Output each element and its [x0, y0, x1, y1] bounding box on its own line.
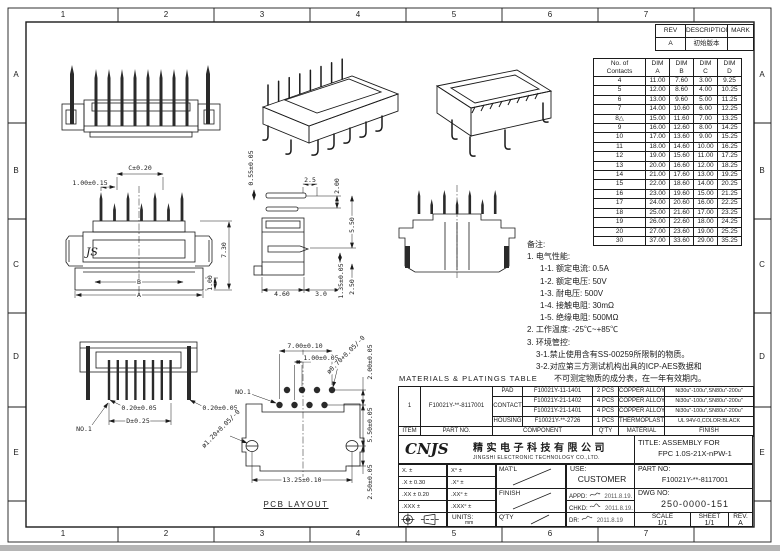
grid-ref-label: 4: [356, 530, 360, 538]
dimension-label: 2.50±0.05: [367, 463, 374, 500]
table-cell: 5: [594, 86, 646, 95]
dimension-label: D±0.25: [125, 418, 150, 425]
table-row: No. ofContactsDIMADIMBDIMCDIMD: [594, 59, 742, 77]
company-cell: CNJS 精实电子科技有限公司 JINGSHI ELECTRONIC TECHN…: [398, 435, 635, 464]
table-row: 613.009.605.0011.25: [594, 95, 742, 104]
table-cell: 13: [594, 161, 646, 170]
table-cell: F10021Y-21-1401: [523, 407, 593, 417]
dr-signature: [581, 515, 593, 522]
note-line: 1-3. 耐电压: 500V: [527, 288, 706, 300]
table-cell: 6.00: [694, 105, 718, 114]
table-cell: 14: [594, 171, 646, 180]
dimension-label: 2.50: [349, 278, 356, 296]
table-cell: 14.00: [694, 180, 718, 189]
table-cell: 4 PCS: [593, 407, 619, 417]
column-header: DIMA: [646, 59, 670, 77]
note-line: 3-2.对应第三方测试机构出具的ICP-AES数据和: [527, 361, 706, 373]
table-cell: 1 PCS: [593, 417, 619, 427]
grid-ref-label: 3: [260, 530, 264, 538]
table-cell: 13.00: [694, 171, 718, 180]
rev-label: REV.: [729, 513, 752, 520]
table-cell: 4.00: [694, 86, 718, 95]
table-cell: 15.00: [694, 189, 718, 198]
grid-ref-label: E: [13, 449, 18, 457]
table-cell: 8△: [594, 114, 646, 123]
table-row: 714.0010.606.0012.25: [594, 105, 742, 114]
table-cell: 8.60: [670, 86, 694, 95]
table-cell: 11.00: [646, 77, 670, 86]
table-cell: F10021Y-**-2726: [523, 417, 593, 427]
table-cell: 19: [594, 218, 646, 227]
table-cell: 35.25: [718, 236, 742, 245]
view-bottom: [80, 342, 197, 400]
table-cell: 9.00: [694, 133, 718, 142]
table-cell: 18: [594, 208, 646, 217]
table-cell: 16.00: [694, 199, 718, 208]
table-cell: 1: [399, 387, 421, 427]
table-cell: 15.25: [718, 133, 742, 142]
units-cell: UNITS: mm: [447, 512, 496, 527]
note-line: 3. 环境管控:: [527, 337, 706, 349]
dimension-label: B: [136, 279, 142, 286]
table-cell: 8.00: [694, 124, 718, 133]
grid-ref-label: 6: [548, 530, 552, 538]
table-cell: 25.00: [646, 208, 670, 217]
title-line1: ASSEMBLY FOR: [662, 438, 720, 447]
table-cell: 11: [594, 142, 646, 151]
grid-ref-label: B: [759, 167, 764, 175]
dimension-label: C±0.20: [127, 165, 152, 172]
dimension-label: JS: [85, 247, 99, 258]
dimension-label: 0.20±0.05: [120, 405, 157, 412]
grid-ref-label: 1: [61, 11, 65, 19]
table-cell: 15: [594, 180, 646, 189]
dimension-label: 5.50: [349, 216, 356, 234]
table-row: 1118.0014.6010.0016.25: [594, 142, 742, 151]
table-cell: COPPER ALLOY: [619, 387, 665, 397]
column-header: No. ofContacts: [594, 59, 646, 77]
grid-ref-label: 4: [356, 11, 360, 19]
table-row: 1219.0015.6011.0017.25: [594, 152, 742, 161]
table-cell: 18.00: [646, 142, 670, 151]
table-cell: 14.00: [646, 105, 670, 114]
table-cell: 17.60: [670, 171, 694, 180]
grid-ref-label: 3: [260, 11, 264, 19]
view-iso-left: [263, 59, 398, 155]
table-cell: 19.00: [694, 227, 718, 236]
dimension-label: 2.00±0.05: [367, 343, 374, 380]
table-cell: 13.60: [670, 133, 694, 142]
table-cell: COPPER ALLOY: [619, 397, 665, 407]
dimension-label: NO.1: [75, 426, 93, 433]
table-cell: 6: [594, 95, 646, 104]
table-cell: 24.00: [646, 199, 670, 208]
table-row: 8△15.0011.607.0013.25: [594, 114, 742, 123]
table-cell: 4: [594, 77, 646, 86]
table-cell: 23.25: [718, 208, 742, 217]
cnjs-logo: CNJS: [405, 440, 449, 458]
grid-ref-label: 6: [548, 11, 552, 19]
use-value: CUSTOMER: [570, 474, 634, 484]
matl-cell: MAT'L: [496, 464, 566, 489]
table-cell: 5.00: [694, 95, 718, 104]
title-label: TITLE:: [638, 438, 661, 447]
table-cell: 22.00: [646, 180, 670, 189]
grid-ref-label: 2: [164, 11, 168, 19]
table-cell: 7.60: [670, 77, 694, 86]
table-cell: F10021Y-**-8117001: [421, 387, 493, 427]
dwg-no-label: DWG NO:: [638, 490, 670, 497]
dimension-label: 7.30: [221, 241, 228, 259]
table-cell: 18.00: [694, 218, 718, 227]
use-cell: USE: CUSTOMER: [566, 464, 635, 489]
qty-cell: Q'TY: [496, 512, 566, 527]
view-top: [62, 65, 220, 137]
dimension-label: 0.55±0.05: [248, 149, 255, 186]
table-row: 1825.0021.6017.0023.25: [594, 208, 742, 217]
grid-ref-label: E: [759, 449, 764, 457]
note-line: 3-1.禁止使用含有SS-00259所限制的物质。: [527, 349, 706, 361]
dimension-label: 13.25±0.10: [281, 477, 322, 484]
notes-section: 备注:1. 电气性能:1-1. 额定电流: 0.5A1-2. 额定电压: 50V…: [527, 239, 706, 385]
column-header: DIMC: [694, 59, 718, 77]
table-row: 916.0012.608.0014.25: [594, 124, 742, 133]
dr-label: DR:: [569, 518, 579, 524]
note-line: 1-1. 额定电流: 0.5A: [527, 263, 706, 275]
table-cell: 3.00: [694, 77, 718, 86]
table-cell: 14.60: [670, 142, 694, 151]
table-cell: 19.00: [646, 152, 670, 161]
table-cell: 18.25: [718, 161, 742, 170]
table-row: 1522.0018.6014.0020.25: [594, 180, 742, 189]
table-cell: 15.00: [646, 114, 670, 123]
table-cell: 20.60: [670, 199, 694, 208]
scale-cell: SCALE 1/1: [634, 512, 691, 527]
table-cell: 26.00: [646, 218, 670, 227]
table-row: 1F10021Y-**-8117001PADF10021Y-11-14012 P…: [399, 387, 754, 397]
table-cell: 21.25: [718, 189, 742, 198]
table-cell: 14.25: [718, 124, 742, 133]
table-cell: 10.60: [670, 105, 694, 114]
company-name-cn: 精实电子科技有限公司: [473, 439, 608, 454]
table-cell: 19.60: [670, 189, 694, 198]
table-cell: 16.00: [646, 124, 670, 133]
grid-ref-label: B: [13, 167, 18, 175]
title-block: CNJS 精实电子科技有限公司 JINGSHI ELECTRONIC TECHN…: [398, 435, 753, 527]
table-row: 1017.0013.609.0015.25: [594, 133, 742, 142]
table-cell: 17.00: [646, 133, 670, 142]
dimension-label: 4.60: [273, 291, 291, 298]
use-label: USE:: [570, 466, 586, 473]
grid-ref-label: 7: [644, 11, 648, 19]
table-cell: 13.00: [646, 95, 670, 104]
dwg-no-cell: DWG NO: 250-0000-151: [634, 488, 753, 513]
table-cell: 13.25: [718, 114, 742, 123]
column-header: MARK: [728, 25, 754, 38]
table-cell: 15.60: [670, 152, 694, 161]
rev-value: A: [729, 520, 752, 527]
table-cell: 12.00: [646, 86, 670, 95]
column-header: REV: [656, 25, 686, 38]
table-cell: 19.25: [718, 171, 742, 180]
column-header: DIMB: [670, 59, 694, 77]
table-cell: 12.60: [670, 124, 694, 133]
table-cell: Ni30u"-100u",SN80u"-200u": [665, 387, 754, 397]
revision-table: REVDESCRIPTIONMARKA初始版本: [655, 24, 754, 51]
dr-cell: DR: 2011.8.19: [566, 512, 635, 527]
note-line: 1-4. 接触电阻: 30mΩ: [527, 300, 706, 312]
dimension-label: 2.5: [303, 177, 317, 184]
column-header: DESCRIPTION: [686, 25, 728, 38]
table-cell: 7.00: [694, 114, 718, 123]
table-row: 1320.0016.6012.0018.25: [594, 161, 742, 170]
dimension-label: PCB LAYOUT: [262, 501, 329, 509]
part-no-label: PART NO:: [638, 466, 670, 473]
grid-ref-label: 5: [452, 530, 456, 538]
grid-ref-label: 2: [164, 530, 168, 538]
table-cell: 16: [594, 189, 646, 198]
note-line: 1-2. 额定电压: 50V: [527, 276, 706, 288]
grid-ref-label: C: [13, 261, 19, 269]
table-cell: 16.60: [670, 161, 694, 170]
table-cell: 4 PCS: [593, 397, 619, 407]
table-cell: 21.60: [670, 208, 694, 217]
table-cell: 23.00: [646, 189, 670, 198]
table-row: 1724.0020.6016.0022.25: [594, 199, 742, 208]
table-cell: 17: [594, 199, 646, 208]
table-cell: 21.00: [646, 171, 670, 180]
grid-ref-label: 7: [644, 530, 648, 538]
title-cell: TITLE: ASSEMBLY FOR FPC 1.0S-21X-nPW-1: [634, 435, 753, 464]
finish-cell: FINISH: [496, 488, 566, 513]
dimension-table: No. ofContactsDIMADIMBDIMCDIMD411.007.60…: [593, 58, 742, 246]
page-edge-shadow: [0, 545, 780, 551]
table-cell: 20.25: [718, 180, 742, 189]
materials-table: 1F10021Y-**-8117001PADF10021Y-11-14012 P…: [398, 386, 754, 437]
table-row: 2027.0023.6019.0025.25: [594, 227, 742, 236]
company-name-en: JINGSHI ELECTRONIC TECHNOLOGY CO.,LTD.: [473, 455, 608, 461]
part-no-cell: PART NO: F10021Y-**-8117001: [634, 464, 753, 489]
table-cell: F10021Y-11-1401: [523, 387, 593, 397]
title-line2: FPC 1.0S-21X-nPW-1: [638, 449, 752, 458]
table-cell: HOUSING: [493, 417, 523, 427]
dr-date: 2011.8.19: [597, 518, 623, 524]
table-cell: 初始版本: [686, 38, 728, 51]
table-cell: 20: [594, 227, 646, 236]
projection-symbol-cell: [398, 512, 447, 527]
sheet-label: SHEET: [691, 513, 728, 520]
table-cell: 9: [594, 124, 646, 133]
chkd-signature: [589, 503, 601, 510]
table-cell: 23.60: [670, 227, 694, 236]
table-cell: 16.25: [718, 142, 742, 151]
table-row: 1926.0022.6018.0024.25: [594, 218, 742, 227]
dimension-label: 3.0: [314, 291, 328, 298]
part-no-value: F10021Y-**-8117001: [638, 475, 752, 484]
table-cell: 11.00: [694, 152, 718, 161]
materials-table-title: MATERIALS & PLATINGS TABLE: [399, 374, 538, 383]
table-row: 411.007.603.009.25: [594, 77, 742, 86]
table-cell: THERMOPLASTIC: [619, 417, 665, 427]
table-cell: 10: [594, 133, 646, 142]
table-cell: COPPER ALLOY: [619, 407, 665, 417]
dimension-label: A: [136, 292, 142, 299]
drawing-sheet: REVDESCRIPTIONMARKA初始版本 No. ofContactsDI…: [0, 0, 780, 551]
dimension-label: 5.50±0.05: [367, 406, 374, 443]
note-line: 1-5. 绝缘电阻: 500MΩ: [527, 312, 706, 324]
view-side: [254, 193, 308, 275]
grid-ref-label: 5: [452, 11, 456, 19]
table-cell: 22.60: [670, 218, 694, 227]
appd-signature: [589, 491, 601, 498]
table-cell: F10021Y-21-1402: [523, 397, 593, 407]
table-cell: 27.00: [646, 227, 670, 236]
table-row: 1623.0019.6015.0021.25: [594, 189, 742, 198]
units-value: mm: [452, 521, 495, 525]
view-iso-right: [437, 70, 551, 156]
dimension-lines: [75, 174, 366, 483]
grid-ref-label: D: [759, 353, 765, 361]
note-line: 2. 工作温度: -25℃~+85℃: [527, 324, 706, 336]
table-cell: CONTACT: [493, 397, 523, 417]
table-row: A初始版本: [656, 38, 754, 51]
scale-label: SCALE: [635, 513, 690, 520]
dimension-label: 1.35±0.05: [338, 262, 345, 299]
table-cell: 24.25: [718, 218, 742, 227]
note-line: 备注:: [527, 239, 706, 251]
grid-ref-label: D: [13, 353, 19, 361]
sheet-cell: SHEET 1/1: [690, 512, 729, 527]
scale-value: 1/1: [635, 520, 690, 527]
grid-ref-label: C: [759, 261, 765, 269]
table-cell: 9.60: [670, 95, 694, 104]
table-cell: 12.00: [694, 161, 718, 170]
table-cell: A: [656, 38, 686, 51]
table-cell: 18.60: [670, 180, 694, 189]
grid-ref-label: A: [13, 71, 18, 79]
table-cell: 11.25: [718, 95, 742, 104]
dimension-label: 2.00: [334, 177, 341, 195]
table-cell: 2 PCS: [593, 387, 619, 397]
sheet-value: 1/1: [691, 520, 728, 527]
column-header: DIMD: [718, 59, 742, 77]
table-cell: 20.00: [646, 161, 670, 170]
dwg-no-value: 250-0000-151: [638, 499, 752, 509]
note-line: 1. 电气性能:: [527, 251, 706, 263]
table-cell: [728, 38, 754, 51]
table-cell: PAD: [493, 387, 523, 397]
table-cell: 22.25: [718, 199, 742, 208]
table-cell: UL 94V-0,COLOR:BLACK: [665, 417, 754, 427]
dimension-label: 7.00±0.10: [286, 343, 323, 350]
dimension-label: NO.1: [234, 389, 252, 396]
table-cell: 17.25: [718, 152, 742, 161]
table-cell: 12: [594, 152, 646, 161]
table-cell: Ni30u"-100u",SN80u"-200u": [665, 407, 754, 417]
table-row: 1421.0017.6013.0019.25: [594, 171, 742, 180]
table-cell: 10.25: [718, 86, 742, 95]
note-line: 不可测定物质的成分表，在一年有效期内。: [527, 373, 706, 385]
table-cell: 9.25: [718, 77, 742, 86]
grid-ref-label: 1: [61, 530, 65, 538]
third-angle-projection-icon: [399, 513, 445, 526]
table-cell: 10.00: [694, 142, 718, 151]
table-cell: 17.00: [694, 208, 718, 217]
units-label: UNITS:: [452, 514, 495, 521]
dimension-label: 1.00: [207, 274, 214, 292]
table-cell: 7: [594, 105, 646, 114]
table-cell: 11.60: [670, 114, 694, 123]
grid-ref-label: A: [759, 71, 764, 79]
dimension-label: 1.00±0.15: [71, 180, 108, 187]
table-cell: Ni30u"-100u",SN80u"-200u": [665, 397, 754, 407]
table-cell: 12.25: [718, 105, 742, 114]
table-row: 512.008.604.0010.25: [594, 86, 742, 95]
rev-cell: REV. A: [728, 512, 753, 527]
table-cell: 25.25: [718, 227, 742, 236]
table-row: REVDESCRIPTIONMARK: [656, 25, 754, 38]
